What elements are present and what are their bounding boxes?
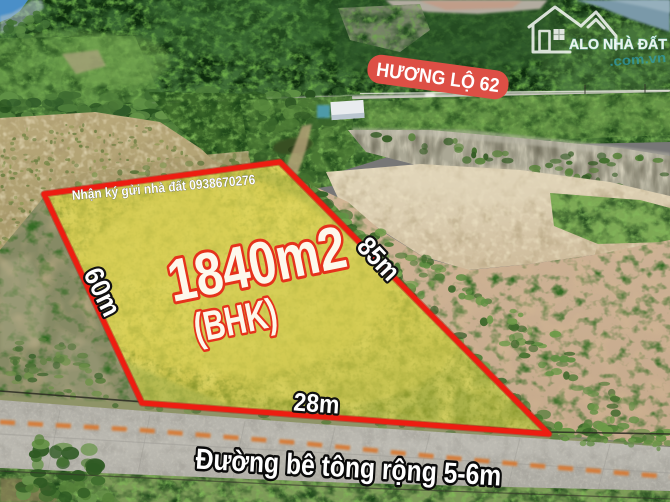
svg-text:28m: 28m: [293, 388, 341, 419]
